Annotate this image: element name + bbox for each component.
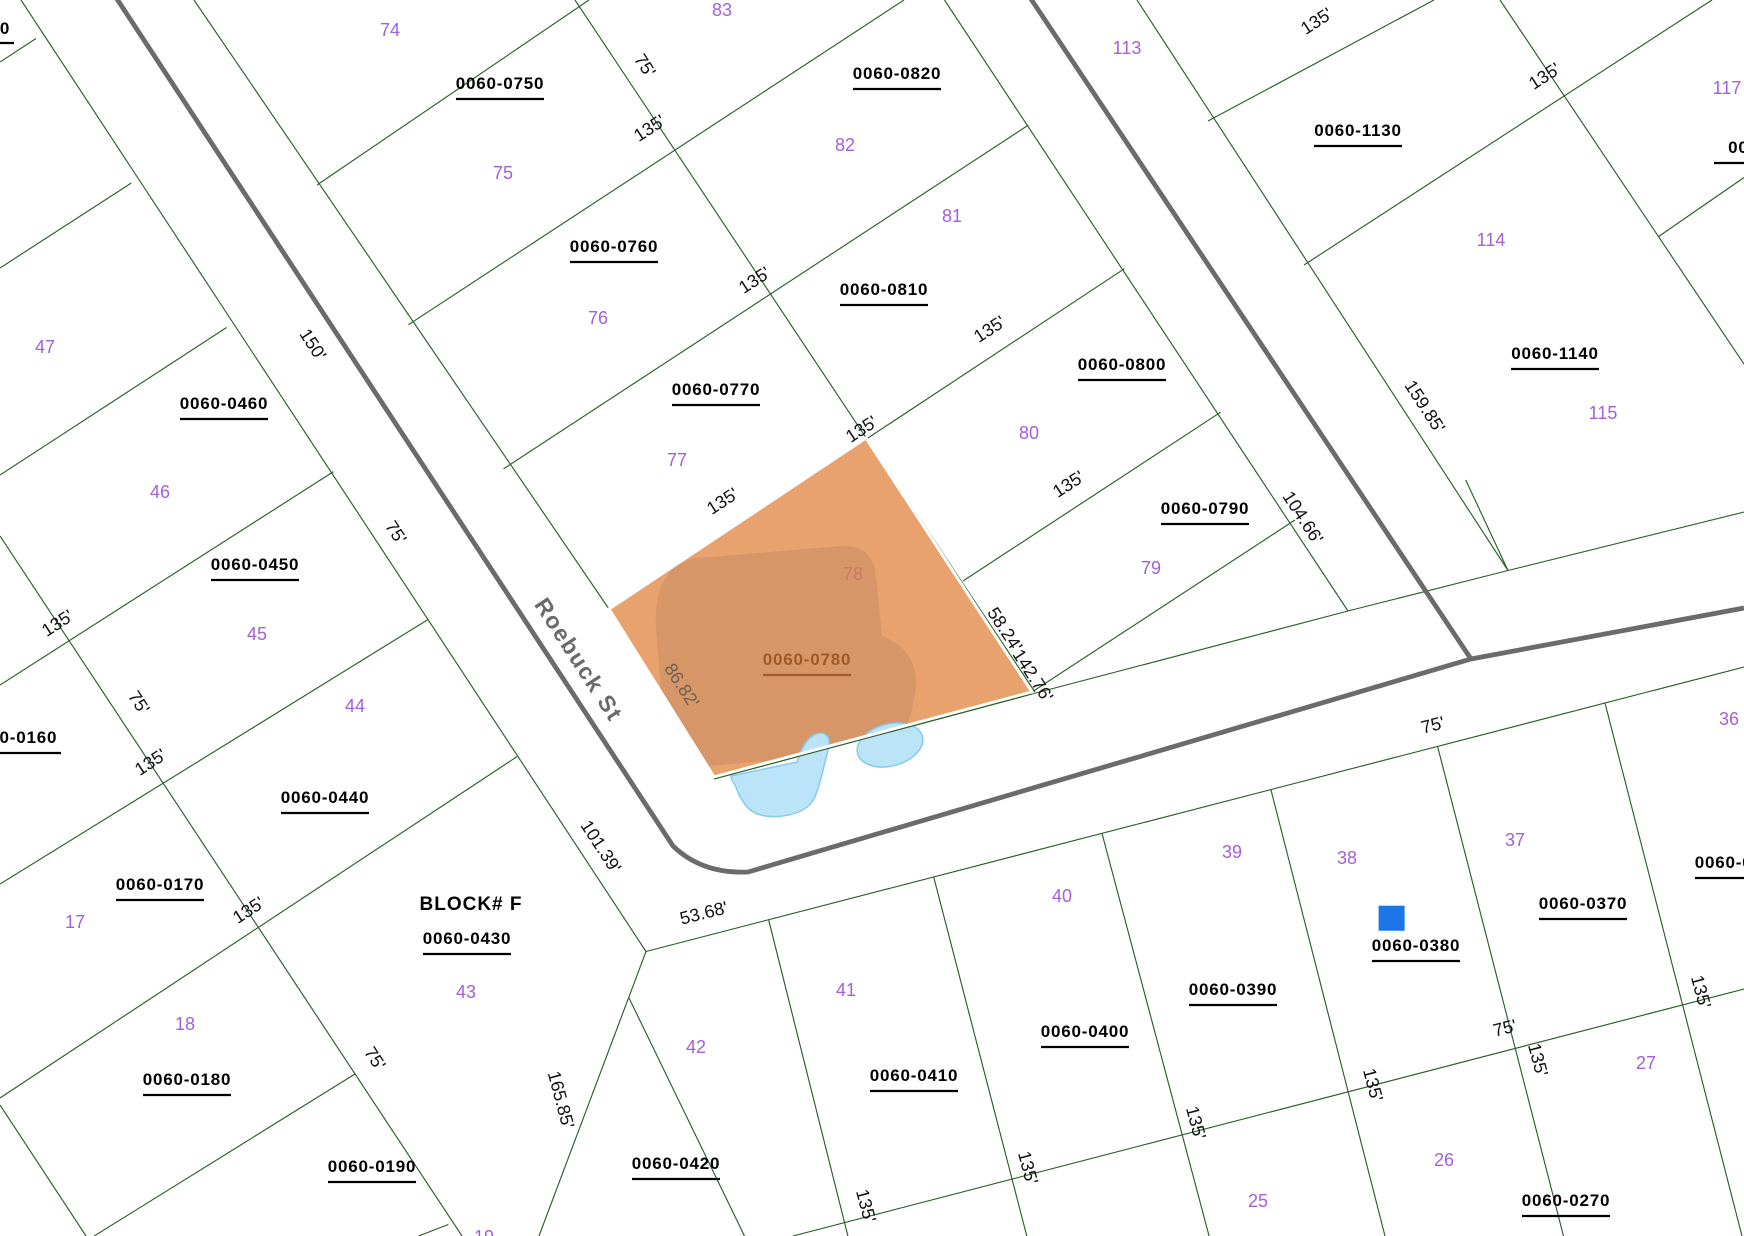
svg-text:0060-0410: 0060-0410 <box>870 1066 959 1085</box>
svg-text:0060-0460: 0060-0460 <box>180 394 269 413</box>
svg-text:0060-0370: 0060-0370 <box>1539 894 1628 913</box>
svg-text:0060-0820: 0060-0820 <box>853 64 942 83</box>
svg-text:45: 45 <box>247 624 267 644</box>
svg-text:115: 115 <box>1589 403 1618 423</box>
svg-text:75: 75 <box>493 163 513 183</box>
svg-text:0060-0770: 0060-0770 <box>672 380 761 399</box>
svg-text:0060-0800: 0060-0800 <box>1078 355 1167 374</box>
svg-text:38: 38 <box>1337 848 1357 868</box>
svg-text:37: 37 <box>1505 830 1525 850</box>
svg-text:0060-0810: 0060-0810 <box>840 280 929 299</box>
svg-text:0060-0450: 0060-0450 <box>211 555 300 574</box>
svg-text:26: 26 <box>1434 1150 1454 1170</box>
svg-text:113: 113 <box>1113 38 1142 58</box>
svg-text:0060-0360: 0060-0360 <box>1695 853 1744 872</box>
svg-text:17: 17 <box>65 912 85 932</box>
svg-text:0060-0190: 0060-0190 <box>328 1157 417 1176</box>
svg-text:41: 41 <box>836 980 856 1000</box>
svg-text:0060-0170: 0060-0170 <box>116 875 205 894</box>
svg-text:40: 40 <box>1052 886 1072 906</box>
svg-text:0060-0790: 0060-0790 <box>1161 499 1250 518</box>
svg-text:0060-0750: 0060-0750 <box>456 74 545 93</box>
svg-text:42: 42 <box>686 1037 706 1057</box>
svg-text:19: 19 <box>474 1227 494 1236</box>
svg-text:0: 0 <box>0 19 10 38</box>
svg-text:0060-0390: 0060-0390 <box>1189 980 1278 999</box>
svg-text:80: 80 <box>1019 423 1039 443</box>
svg-text:74: 74 <box>380 20 400 40</box>
svg-text:47: 47 <box>35 337 55 357</box>
svg-text:46: 46 <box>150 482 170 502</box>
svg-text:36: 36 <box>1719 709 1739 729</box>
svg-text:BLOCK# F: BLOCK# F <box>420 894 523 915</box>
svg-text:0060-0180: 0060-0180 <box>143 1070 232 1089</box>
svg-text:39: 39 <box>1222 842 1242 862</box>
svg-text:0060-0430: 0060-0430 <box>423 929 512 948</box>
svg-text:0060-1140: 0060-1140 <box>1511 344 1599 363</box>
svg-text:18: 18 <box>175 1014 195 1034</box>
svg-text:0060-0: 0060-0 <box>1728 138 1744 157</box>
svg-text:114: 114 <box>1477 230 1506 250</box>
svg-text:76: 76 <box>588 308 608 328</box>
svg-text:43: 43 <box>456 982 476 1002</box>
svg-text:44: 44 <box>345 696 365 716</box>
svg-text:82: 82 <box>835 135 855 155</box>
svg-text:0060-0400: 0060-0400 <box>1041 1022 1130 1041</box>
svg-text:79: 79 <box>1141 558 1161 578</box>
svg-text:0060-0160: 0060-0160 <box>0 728 57 747</box>
svg-text:83: 83 <box>712 0 732 20</box>
svg-text:77: 77 <box>667 450 687 470</box>
svg-text:0060-0380: 0060-0380 <box>1372 936 1461 955</box>
svg-text:0060-0270: 0060-0270 <box>1522 1191 1611 1210</box>
svg-text:0060-0760: 0060-0760 <box>570 237 659 256</box>
svg-text:117: 117 <box>1713 78 1742 98</box>
svg-text:81: 81 <box>942 206 962 226</box>
svg-text:27: 27 <box>1636 1053 1656 1073</box>
svg-text:0060-0780: 0060-0780 <box>763 650 852 669</box>
svg-text:0060-0420: 0060-0420 <box>632 1154 721 1173</box>
svg-text:25: 25 <box>1248 1191 1268 1211</box>
svg-text:0060-0440: 0060-0440 <box>281 788 370 807</box>
svg-text:78: 78 <box>843 564 863 584</box>
svg-text:0060-1130: 0060-1130 <box>1314 121 1402 140</box>
